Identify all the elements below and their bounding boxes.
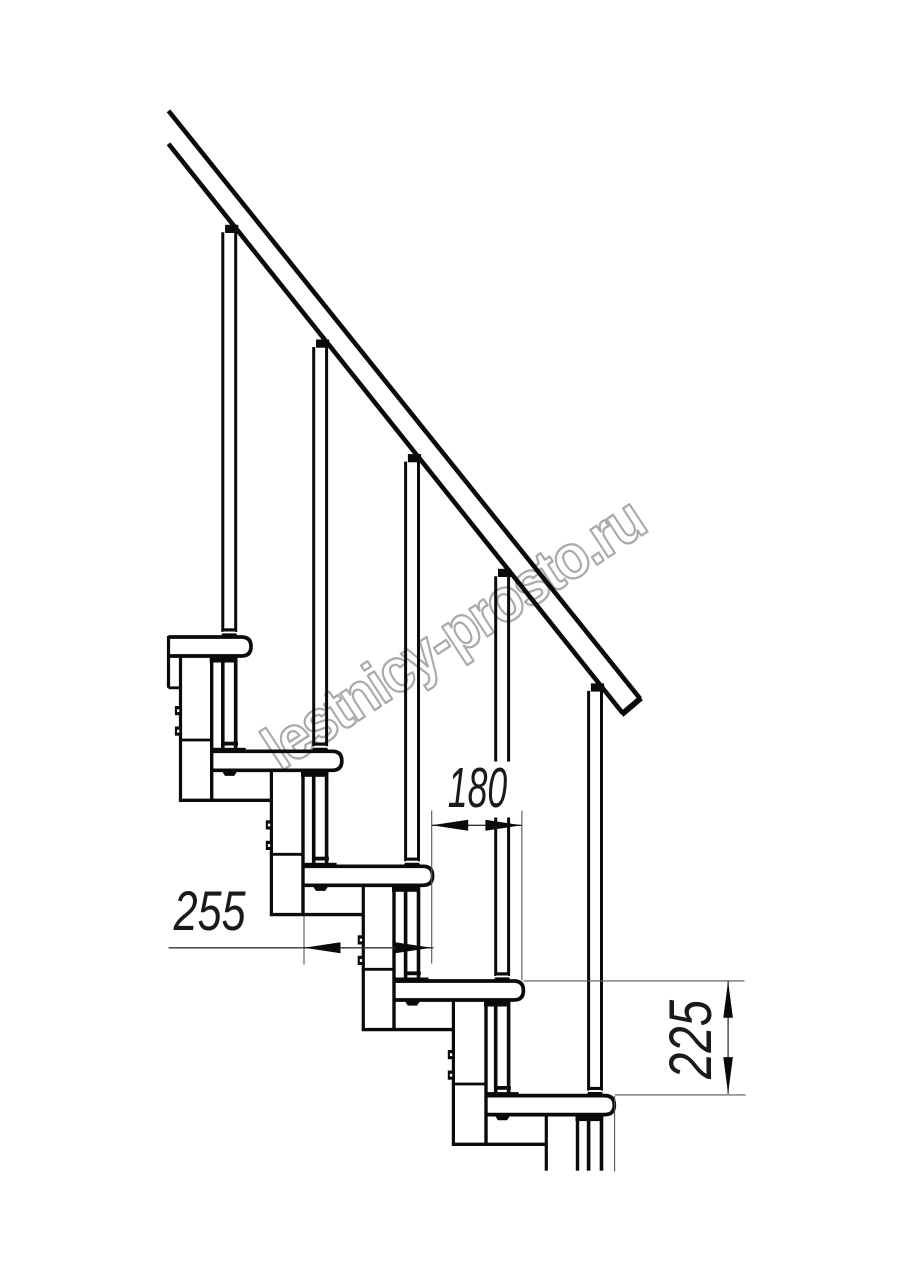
- svg-text:180: 180: [448, 757, 507, 820]
- svg-text:255: 255: [173, 880, 246, 942]
- svg-text:225: 225: [658, 999, 725, 1080]
